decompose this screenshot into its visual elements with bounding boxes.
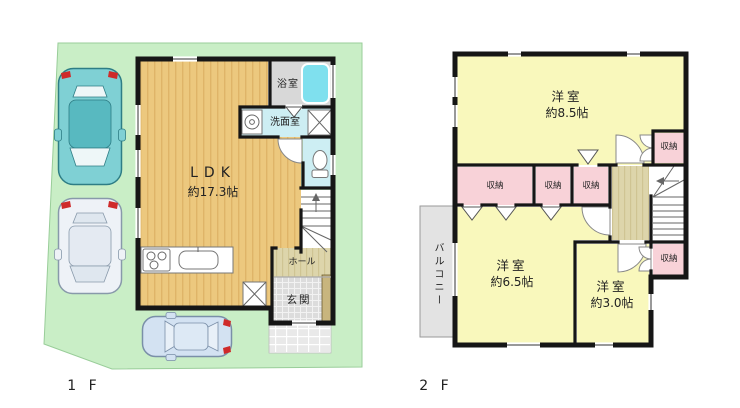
closet-rm-label: 収納 [660, 255, 677, 264]
closet-b-label: 収納 [544, 182, 561, 191]
bathroom-label: 浴室 [277, 80, 299, 90]
bedroom65-label: 洋室 [496, 260, 527, 273]
bedroom30-label: 洋室 [596, 281, 627, 294]
floorplan-drawing [0, 0, 740, 408]
washroom-label: 洗面室 [270, 118, 300, 128]
bedroom30-area-label: 約3.0帖 [590, 297, 633, 309]
bedroom85-area-label: 約8.5帖 [545, 107, 588, 119]
bedroom65-area-label: 約6.5帖 [490, 276, 533, 288]
washer-pan [308, 110, 331, 135]
bathtub [302, 64, 329, 103]
car-teal [55, 69, 126, 185]
hall-2f-floor [612, 166, 649, 240]
entrance-porch [269, 325, 331, 353]
refrigerator-space [243, 282, 266, 306]
car-blue [143, 313, 232, 361]
closet-a-label: 収納 [486, 182, 503, 191]
stairs-2f-floor [651, 165, 686, 242]
entrance-label: 玄関 [287, 295, 312, 306]
ldk-area-label: 約17.3帖 [188, 186, 239, 198]
ldk-label: LDK [190, 166, 236, 180]
kitchen-sink [179, 251, 218, 269]
floor1-title: 1 F [67, 379, 100, 393]
washing-machine [242, 110, 262, 134]
car-white [55, 199, 126, 294]
floorplan-canvas: LDK 約17.3帖 浴室 洗面室 ホール 玄関 1 F 洋室 約8.5帖 洋室… [0, 0, 740, 408]
hall-1f-label: ホール [288, 259, 315, 268]
bedroom85-label: 洋室 [551, 91, 582, 104]
balcony-label: バルコニー [432, 243, 442, 308]
floor2-title: 2 F [419, 379, 452, 393]
closet-c-label: 収納 [582, 182, 599, 191]
toilet-icon [312, 151, 328, 178]
closet-tr-label: 収納 [660, 143, 677, 152]
